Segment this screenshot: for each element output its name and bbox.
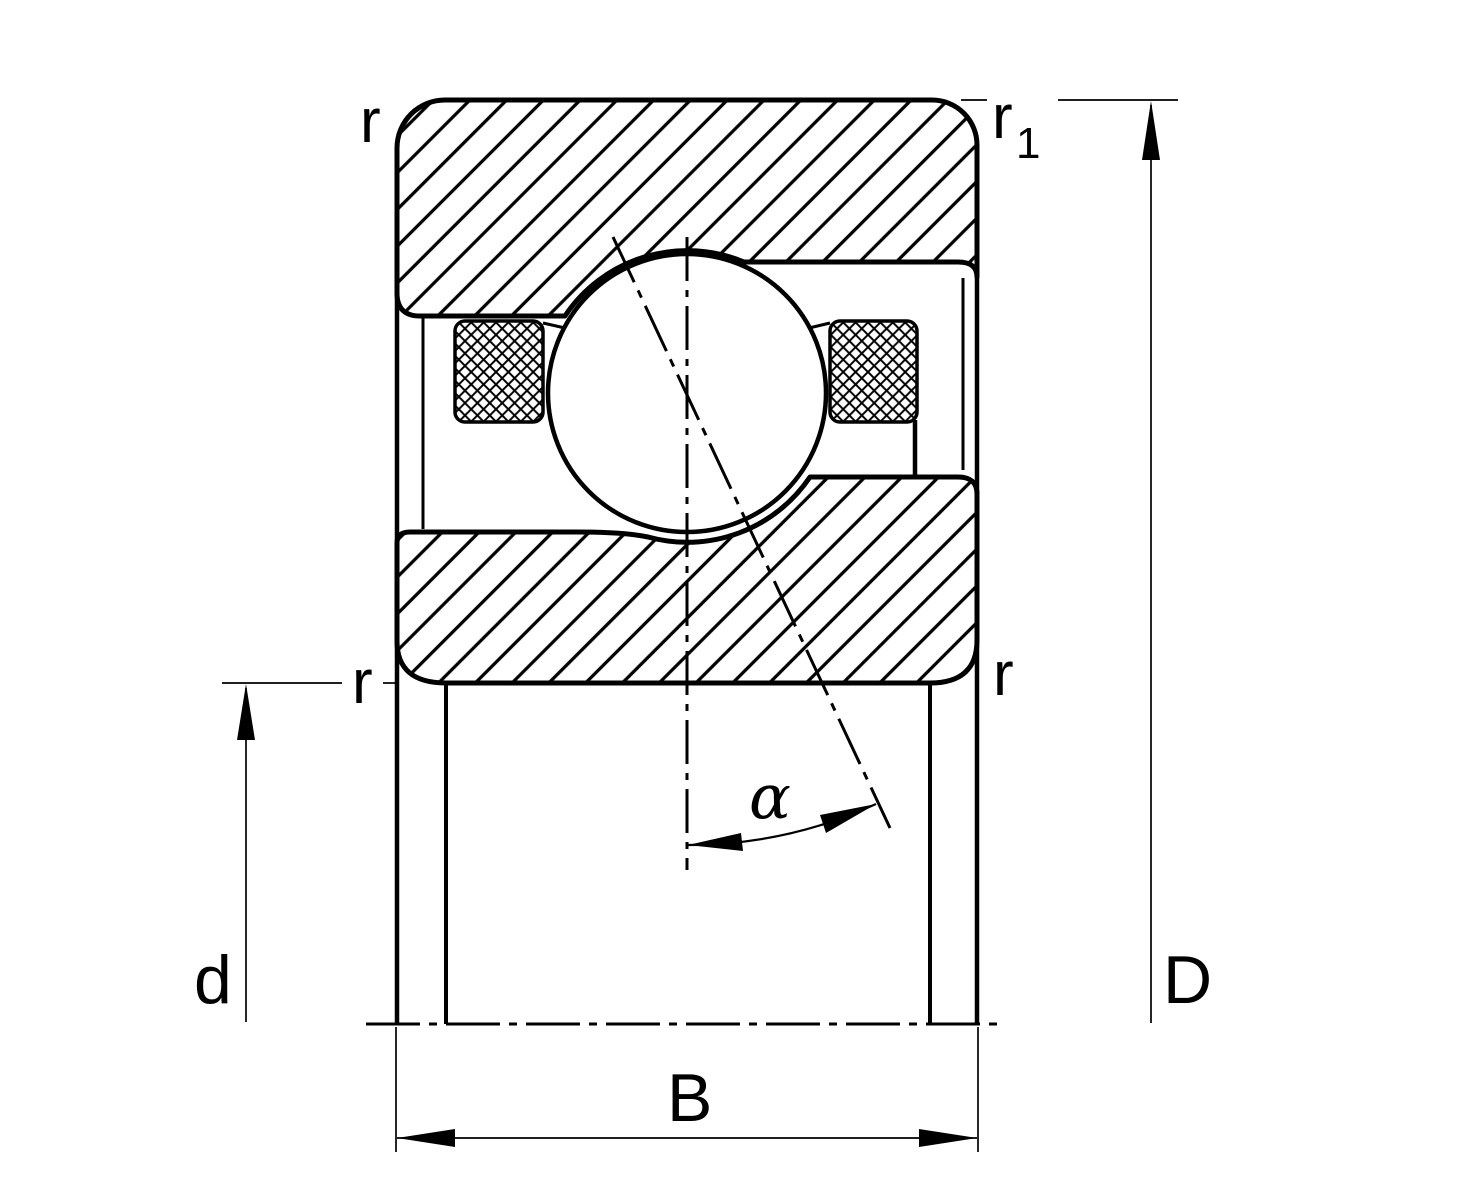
label-bore-diameter-d: d bbox=[194, 942, 232, 1018]
seal-right-body bbox=[830, 321, 917, 422]
dim-alpha-arrow-left-icon bbox=[688, 833, 743, 851]
label-outside-diameter-D: D bbox=[1163, 942, 1212, 1018]
seal-left-lip bbox=[543, 323, 565, 328]
seal-left-body bbox=[455, 321, 543, 422]
bearing-cross-section-drawing: r r 1 r r d D B α bbox=[0, 0, 1466, 1200]
dim-D bbox=[961, 100, 1178, 1023]
label-r1-base: r bbox=[992, 83, 1013, 152]
dim-d bbox=[222, 683, 397, 1022]
label-r1-subscript: 1 bbox=[1016, 119, 1040, 168]
dim-B-arrow-left-icon bbox=[397, 1129, 455, 1147]
label-contact-angle-alpha: α bbox=[749, 760, 791, 833]
seal-right-lip-top bbox=[809, 323, 830, 328]
dim-alpha-arrow-right-icon bbox=[820, 804, 876, 833]
bearing-diagram-page: r r 1 r r d D B α bbox=[0, 0, 1466, 1200]
dim-B-arrow-right-icon bbox=[919, 1129, 977, 1147]
label-width-B: B bbox=[667, 1060, 712, 1136]
label-r-mid-right: r bbox=[993, 640, 1014, 709]
label-r-top-left: r bbox=[360, 87, 381, 156]
dim-d-arrow-icon bbox=[237, 684, 255, 740]
label-r-mid-left: r bbox=[352, 648, 373, 717]
dim-D-arrow-icon bbox=[1142, 101, 1160, 160]
